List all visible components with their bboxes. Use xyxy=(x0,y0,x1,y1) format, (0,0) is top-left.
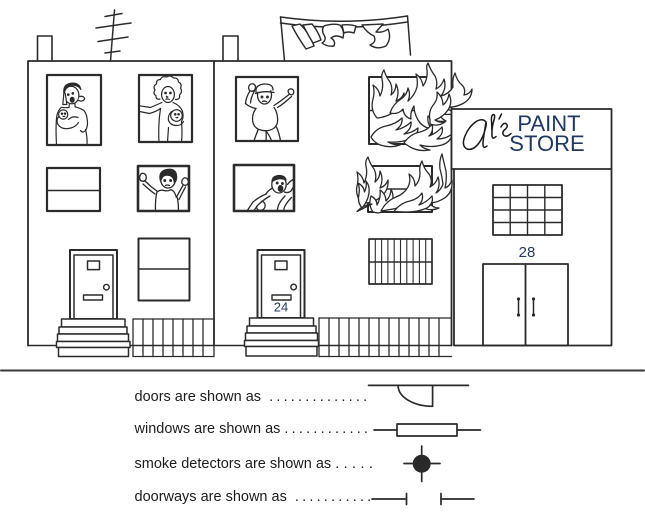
svg-text:doorways are shown as .......: doorways are shown as ........... xyxy=(135,489,375,505)
svg-text:28: 28 xyxy=(519,244,536,261)
svg-text:24: 24 xyxy=(274,300,288,315)
svg-text:smoke detectors are shown as .: smoke detectors are shown as ..... xyxy=(135,456,378,472)
svg-text:STORE: STORE xyxy=(509,131,584,156)
svg-text:doors are shown as ..........: doors are shown as .............. xyxy=(135,389,371,405)
svg-text:windows are shown as .........: windows are shown as ............ xyxy=(134,421,372,437)
